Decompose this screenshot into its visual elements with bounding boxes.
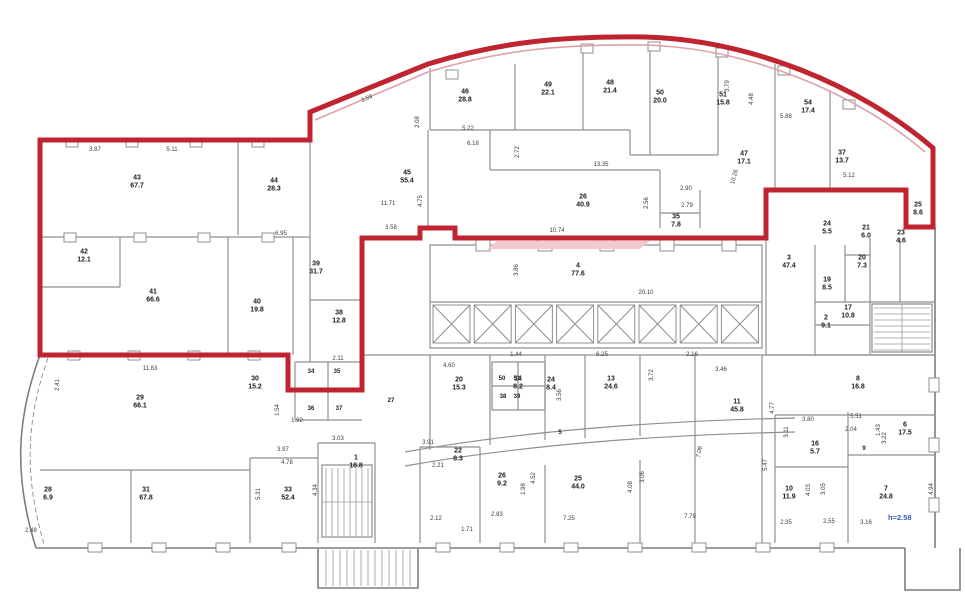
- dimension-label: 2.56: [644, 197, 650, 209]
- room-area: 40.9: [576, 201, 590, 209]
- room-label: 477.6: [571, 263, 585, 278]
- room-label: 3812.8: [332, 310, 346, 325]
- room-label: 4019.8: [250, 299, 264, 314]
- room-label: 2966.1: [133, 395, 147, 410]
- room-number: 28: [43, 487, 53, 495]
- room-area: 52.4: [281, 494, 295, 502]
- room-number: 35: [334, 369, 341, 375]
- room-area: 22.1: [541, 89, 555, 97]
- selection-outline: [40, 37, 933, 390]
- facade-glazing-line: [315, 45, 925, 152]
- dimension-label: 2.79: [681, 203, 693, 209]
- dimension-label: 2.12: [430, 516, 442, 522]
- dimension-label: 3.06: [640, 471, 646, 483]
- room-area: 17.1: [737, 158, 751, 166]
- room-area: 13.7: [835, 157, 849, 165]
- room-area: 21.4: [603, 87, 617, 95]
- room-area: 67.8: [139, 494, 153, 502]
- room-label: 4922.1: [541, 82, 555, 97]
- room-area: 5.7: [810, 448, 820, 456]
- room-label: 1324.6: [604, 376, 618, 391]
- room-label: 4821.4: [603, 80, 617, 95]
- dimension-label: 4.94: [929, 483, 935, 495]
- room-number: 38: [332, 310, 346, 318]
- dimension-label: 5.51: [850, 414, 862, 420]
- room-number: 24: [822, 221, 832, 229]
- room-label: 3167.8: [139, 487, 153, 502]
- room-number: 47: [737, 151, 751, 159]
- dimension-label: 3.22: [882, 432, 888, 444]
- room-number: 7: [879, 486, 893, 494]
- dimension-label: 4.78: [281, 460, 293, 466]
- dimension-label: 4.03: [806, 484, 812, 496]
- room-label: 1145.8: [730, 399, 744, 414]
- room-number: 41: [146, 289, 160, 297]
- room-label: 4428.3: [267, 178, 281, 193]
- room-number: 46: [458, 89, 472, 97]
- room-area: 15.3: [452, 384, 466, 392]
- room-area: 18.8: [349, 462, 363, 470]
- room-number: 26: [576, 194, 590, 202]
- room-label: 35: [334, 369, 341, 375]
- room-number: 25: [571, 476, 585, 484]
- room-number: 51: [716, 92, 730, 100]
- room-label: 286.9: [43, 487, 53, 502]
- dimension-label: 3.87: [89, 147, 101, 153]
- room-number: 20: [452, 377, 466, 385]
- room-number: 26: [497, 473, 507, 481]
- dimension-label: 2.04: [845, 427, 857, 433]
- room-label: 4717.1: [737, 151, 751, 166]
- room-label: 4555.4: [400, 170, 414, 185]
- room-number: 4: [571, 263, 585, 271]
- floor-plan-canvas: 4367.74428.34212.14166.64019.83931.73812…: [0, 0, 965, 592]
- room-number: 33: [281, 487, 295, 495]
- dimension-label: 5.22: [462, 126, 474, 132]
- room-number: 45: [400, 170, 414, 178]
- room-area: 28.8: [458, 96, 472, 104]
- dimension-label: 2.41: [55, 379, 61, 391]
- dimension-label: 3.46: [715, 367, 727, 373]
- room-area: 17.5: [898, 429, 912, 437]
- room-area: 24.8: [879, 493, 893, 501]
- room-number: 35: [671, 214, 681, 222]
- dimension-label: 7.25: [563, 516, 575, 522]
- dimension-label: 2.72: [515, 146, 521, 158]
- room-area: 6.0: [861, 232, 871, 240]
- room-label: 51: [514, 376, 521, 382]
- room-number: 51: [514, 376, 521, 382]
- room-area: 8.6: [913, 209, 923, 217]
- dimension-label: 10.74: [549, 228, 564, 234]
- room-label: 27: [388, 398, 395, 404]
- room-label: 207.3: [857, 255, 867, 270]
- room-label: 245.5: [822, 221, 832, 236]
- room-number: 54: [801, 100, 815, 108]
- dimension-label: 2.48: [25, 528, 37, 534]
- dimension-label: 3.11: [784, 426, 790, 437]
- room-label: 29.1: [821, 315, 831, 330]
- room-area: 8.3: [453, 455, 463, 463]
- room-label: 228.3: [453, 448, 463, 463]
- dimension-label: 2.90: [680, 186, 692, 192]
- room-number: 30: [248, 376, 262, 384]
- room-number: 24: [546, 377, 556, 385]
- dimension-label: 1.44: [510, 352, 522, 358]
- dimension-label: 2.21: [432, 463, 444, 469]
- room-number: 43: [130, 175, 144, 183]
- dimension-label: 1.98: [521, 483, 527, 495]
- room-label: 5020.0: [653, 90, 667, 105]
- room-label: 198.5: [822, 277, 832, 292]
- room-number: 19: [822, 277, 832, 285]
- room-label: 2015.3: [452, 377, 466, 392]
- dimension-label: 2.35: [780, 520, 792, 526]
- dimension-label: 3.56: [557, 389, 563, 401]
- room-label: 2640.9: [576, 194, 590, 209]
- room-number: 39: [309, 261, 323, 269]
- room-number: 2: [821, 315, 831, 323]
- height-note: h=2.58: [888, 513, 912, 522]
- room-label: 617.5: [898, 422, 912, 437]
- room-area: 19.8: [250, 306, 264, 314]
- floorplan-drawing: [0, 0, 965, 592]
- room-label: 4212.1: [77, 249, 91, 264]
- dimension-label: 11.71: [381, 201, 396, 207]
- room-area: 45.8: [730, 406, 744, 414]
- stair-hatches: [322, 304, 930, 586]
- room-number: 10: [782, 486, 795, 494]
- dimension-label: 6.95: [275, 231, 287, 237]
- room-number: 31: [139, 487, 153, 495]
- room-area: 15.2: [248, 383, 262, 391]
- room-label: 118.8: [349, 455, 363, 470]
- room-label: 39: [514, 394, 521, 400]
- room-area: 7.8: [671, 221, 681, 229]
- dimension-label: 4.75: [418, 195, 424, 207]
- facade-shading: [487, 241, 650, 249]
- room-area: 8.4: [546, 384, 556, 392]
- room-area: 7.3: [857, 262, 867, 270]
- room-number: 20: [857, 255, 867, 263]
- dimension-label: 2.16: [686, 352, 698, 358]
- room-label: 357.8: [671, 214, 681, 229]
- room-area: 20.0: [653, 97, 667, 105]
- room-number: 3: [782, 255, 796, 263]
- dimension-label: 3.05: [821, 483, 827, 495]
- room-label: 4367.7: [130, 175, 144, 190]
- room-number: 6: [898, 422, 912, 430]
- room-label: 50: [499, 376, 506, 382]
- room-number: 37: [336, 406, 343, 412]
- dimension-label: 1.71: [461, 527, 473, 533]
- dimension-label: 3.80: [802, 417, 814, 423]
- room-area: 4.6: [896, 237, 906, 245]
- room-label: 816.8: [851, 376, 865, 391]
- room-label: 216.0: [861, 225, 871, 240]
- elevator-shaft-row: [433, 305, 758, 343]
- dimension-label: 4.52: [531, 472, 537, 484]
- dimension-label: 5.31: [256, 488, 262, 500]
- room-area: 28.3: [267, 185, 281, 193]
- room-number: 40: [250, 299, 264, 307]
- room-area: 11.9: [782, 493, 795, 501]
- room-label: 5417.4: [801, 100, 815, 115]
- room-label: 1710.8: [841, 305, 855, 320]
- room-area: 44.0: [571, 483, 585, 491]
- room-label: 248.4: [546, 377, 556, 392]
- dimension-label: 5.12: [843, 173, 855, 179]
- dimension-label: 4.34: [313, 484, 319, 496]
- dimension-label: 3.91: [422, 440, 434, 446]
- dimension-label: 6.25: [596, 352, 608, 358]
- dimension-label: 5.47: [763, 459, 769, 471]
- dimension-label: 13.35: [593, 162, 608, 168]
- room-label: 36: [308, 406, 315, 412]
- dimension-label: 3.58: [385, 225, 397, 231]
- room-area: 12.1: [77, 256, 91, 264]
- room-number: 42: [77, 249, 91, 257]
- room-label: 5: [558, 430, 561, 436]
- room-label: 3015.2: [248, 376, 262, 391]
- room-area: 8.5: [822, 284, 832, 292]
- room-label: 9: [862, 446, 865, 452]
- dimension-label: 3.97: [277, 447, 289, 453]
- room-area: 15.8: [716, 99, 730, 107]
- room-area: 31.7: [309, 268, 323, 276]
- dimension-label: 5.88: [780, 114, 792, 120]
- dimension-label: 3.03: [332, 436, 344, 442]
- room-number: 50: [653, 90, 667, 98]
- room-number: 48: [603, 80, 617, 88]
- room-area: 5.5: [822, 228, 832, 236]
- dimension-label: 7.79: [684, 514, 696, 520]
- room-label: 34: [308, 369, 315, 375]
- room-number: 16: [810, 441, 820, 449]
- room-number: 50: [499, 376, 506, 382]
- room-area: 9.1: [821, 322, 831, 330]
- room-label: 3352.4: [281, 487, 295, 502]
- room-label: 4166.6: [146, 289, 160, 304]
- dimension-label: 20.10: [638, 290, 653, 296]
- room-label: 165.7: [810, 441, 820, 456]
- room-number: 5: [558, 430, 561, 436]
- dimension-label: 3.79: [725, 80, 731, 92]
- room-number: 27: [388, 398, 395, 404]
- room-label: 3931.7: [309, 261, 323, 276]
- room-label: 3713.7: [835, 150, 849, 165]
- dimension-label: 4.77: [770, 402, 776, 414]
- room-number: 29: [133, 395, 147, 403]
- room-number: 8: [851, 376, 865, 384]
- room-label: 234.6: [896, 230, 906, 245]
- room-number: 34: [308, 369, 315, 375]
- dimension-label: 1.54: [275, 404, 281, 416]
- room-area: 9.2: [497, 480, 507, 488]
- room-area: 8.2: [513, 383, 523, 391]
- room-number: 25: [913, 202, 923, 210]
- dimension-label: 2.55: [823, 519, 835, 525]
- room-number: 22: [453, 448, 463, 456]
- room-area: 55.4: [400, 177, 414, 185]
- room-area: 77.6: [571, 270, 585, 278]
- room-label: 1011.9: [782, 486, 795, 501]
- room-area: 16.8: [851, 383, 865, 391]
- room-area: 10.8: [841, 312, 855, 320]
- room-number: 23: [896, 230, 906, 238]
- room-label: 269.2: [497, 473, 507, 488]
- dimension-label: 3.16: [860, 520, 872, 526]
- dimension-label: 4.48: [749, 93, 755, 105]
- room-number: 37: [835, 150, 849, 158]
- dimension-label: 2.08: [415, 116, 421, 128]
- room-label: 258.6: [913, 202, 923, 217]
- room-number: 13: [604, 376, 618, 384]
- dimension-label: 4.08: [628, 481, 634, 493]
- dimension-label: 11.83: [143, 366, 158, 372]
- dimension-label: 5.11: [166, 147, 177, 153]
- room-area: 66.1: [133, 402, 147, 410]
- dimension-label: 6.18: [467, 141, 479, 147]
- room-number: 17: [841, 305, 855, 313]
- room-label: 38: [500, 394, 507, 400]
- room-area: 6.9: [43, 494, 53, 502]
- interior-walls: [40, 47, 935, 543]
- room-number: 38: [500, 394, 507, 400]
- room-label: 347.4: [782, 255, 796, 270]
- room-number: 21: [861, 225, 871, 233]
- room-number: 39: [514, 394, 521, 400]
- room-label: 37: [336, 406, 343, 412]
- room-number: 9: [862, 446, 865, 452]
- room-area: 67.7: [130, 182, 144, 190]
- dimension-label: 1.92: [291, 418, 303, 424]
- room-area: 47.4: [782, 262, 796, 270]
- room-area: 66.6: [146, 296, 160, 304]
- dimension-label: 4.60: [443, 363, 455, 369]
- room-area: 12.8: [332, 317, 346, 325]
- room-label: 4628.8: [458, 89, 472, 104]
- room-number: 49: [541, 82, 555, 90]
- dimension-label: 2.83: [491, 512, 503, 518]
- room-number: 44: [267, 178, 281, 186]
- room-number: 11: [730, 399, 744, 407]
- dimension-label: 3.86: [514, 264, 520, 276]
- room-label: 2544.0: [571, 476, 585, 491]
- room-number: 1: [349, 455, 363, 463]
- room-area: 17.4: [801, 107, 815, 115]
- dimension-label: 2.11: [332, 356, 343, 362]
- room-number: 36: [308, 406, 315, 412]
- room-label: 5115.8: [716, 92, 730, 107]
- room-area: 24.6: [604, 383, 618, 391]
- dimension-label: 3.72: [649, 369, 655, 381]
- room-label: 724.8: [879, 486, 893, 501]
